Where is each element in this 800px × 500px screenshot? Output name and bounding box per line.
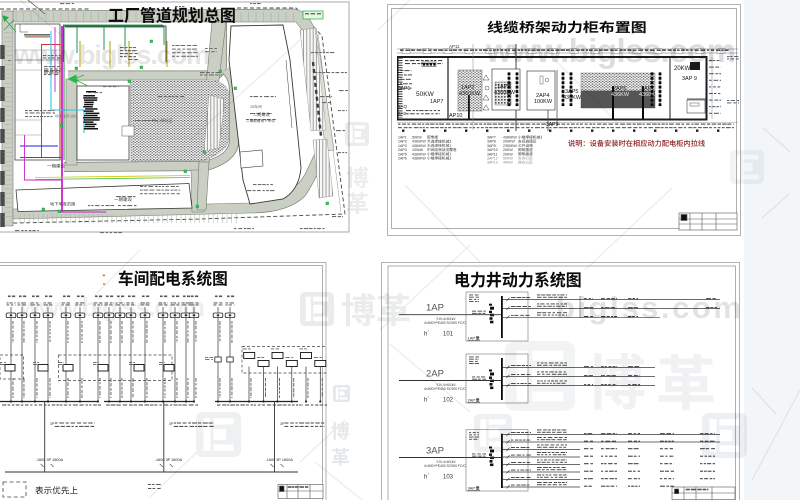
svg-text:www.biglss.com: www.biglss.com [13, 40, 210, 70]
svg-text:www.biglss.com: www.biglss.com [19, 292, 205, 322]
svg-text:biglss.com: biglss.com [556, 290, 741, 325]
svg-text:www.biglss.com: www.biglss.com [485, 32, 736, 69]
